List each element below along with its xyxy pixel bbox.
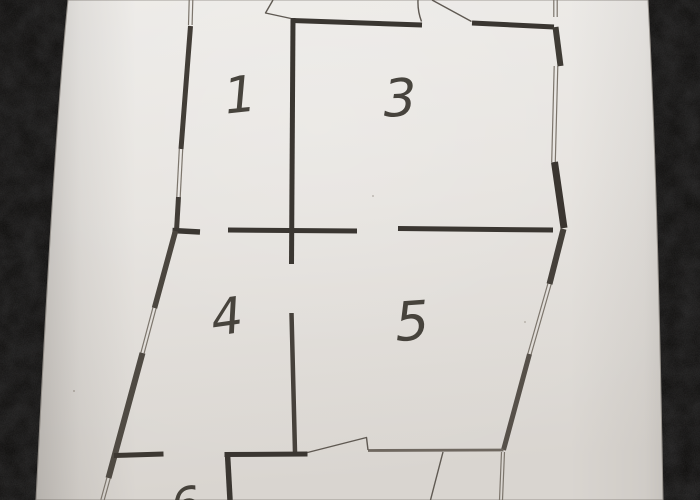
pencil-speck bbox=[372, 195, 374, 197]
paper-sheen bbox=[36, 0, 663, 500]
floor-plan-photo: 1 3 4 5 6 bbox=[0, 0, 700, 500]
room-label-1: 1 bbox=[221, 64, 259, 125]
wall-bottom-room-6 bbox=[225, 454, 308, 455]
pencil-speck bbox=[524, 321, 526, 323]
photo-scene: 1 3 4 5 6 bbox=[0, 0, 700, 500]
wall-left-lower bbox=[177, 197, 179, 231]
wall-bottom-stub-left bbox=[114, 454, 164, 456]
wall-middle-right bbox=[398, 229, 553, 231]
wall-bottom-vertical bbox=[228, 454, 231, 500]
pencil-speck bbox=[73, 390, 75, 392]
wall-divider-rooms-1-3 bbox=[292, 18, 294, 264]
room-label-3: 3 bbox=[382, 68, 417, 129]
wall-middle-left bbox=[228, 230, 357, 231]
wall-bottom-right bbox=[368, 450, 504, 451]
room-label-5: 5 bbox=[393, 289, 432, 354]
